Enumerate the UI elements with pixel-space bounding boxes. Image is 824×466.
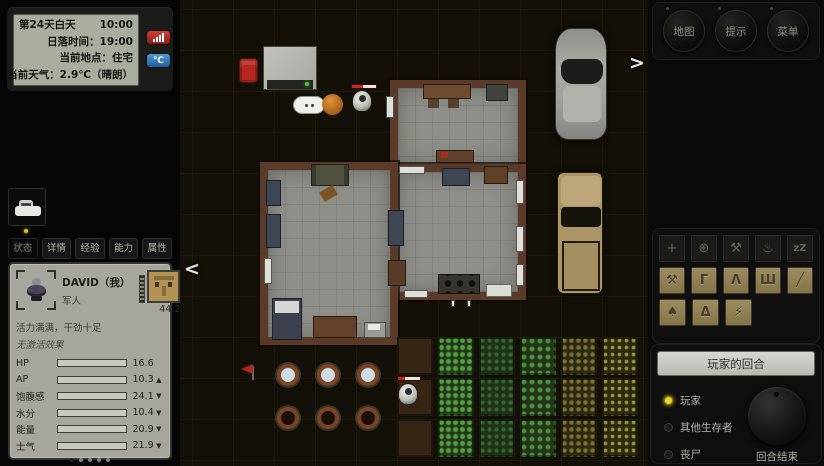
menu-button[interactable]: 菜单 [767, 10, 809, 52]
craft-button[interactable]: ⚒ [723, 235, 749, 262]
empty-pot[interactable] [317, 407, 339, 429]
shelf[interactable] [266, 180, 281, 206]
move-button[interactable]: + [659, 235, 685, 262]
stats-list: HP 16.6 AP 10.3 ▲ 饱腹感 24.1 ▼ 水分 10.4 [16, 355, 164, 454]
hint-button[interactable]: 提示 [715, 10, 757, 52]
game-map[interactable]: > < [180, 0, 648, 466]
stats-pager[interactable] [16, 458, 164, 462]
farm-plot-crop[interactable] [561, 337, 597, 375]
tab-status[interactable]: 状态 [8, 238, 38, 259]
farm-plot-crop[interactable] [479, 378, 515, 416]
player-dot [664, 396, 673, 405]
farm-plot-crop[interactable] [602, 419, 638, 457]
end-turn-label: 回合结束 [745, 449, 809, 464]
desk[interactable] [423, 84, 471, 99]
system-buttons-panel: 地图 提示 菜单 [652, 2, 820, 60]
tab-attributes[interactable]: 属性 [142, 238, 172, 259]
turn-banner: 玩家的回合 [657, 351, 815, 376]
legend-zombies: 丧尸 [664, 447, 733, 462]
door-marker [451, 300, 455, 307]
player-indicator-dot [24, 229, 28, 233]
crowbar-button[interactable]: Γ [691, 267, 717, 294]
current-location: 当前地点：住宅 [60, 50, 134, 67]
tab-experience[interactable]: 经验 [75, 238, 105, 259]
water-pot[interactable] [277, 364, 299, 386]
current-weather: 当前天气：2.9℃（晴朗） [7, 67, 133, 84]
farm-plot-crop[interactable] [520, 378, 556, 416]
door-marker [467, 300, 471, 307]
flashlight-icon: ⚡ [734, 305, 743, 320]
crowbar-icon: Γ [700, 273, 708, 288]
water-pot[interactable] [317, 364, 339, 386]
water-pot[interactable] [357, 364, 379, 386]
window [516, 226, 524, 252]
window [516, 264, 524, 286]
rake-button[interactable]: Ш [755, 267, 781, 294]
pickup-truck[interactable] [557, 172, 603, 294]
sleep-button[interactable]: zZ [787, 235, 813, 262]
rake-icon: Ш [760, 273, 776, 288]
stat-row-energy: 能量 20.9 ▼ [16, 421, 164, 438]
television[interactable] [263, 46, 317, 90]
knife-icon: ╱ [796, 273, 804, 288]
book [368, 324, 380, 330]
health-bar [351, 84, 377, 89]
farm-plot-crop[interactable] [602, 378, 638, 416]
equip-durability-meter [139, 275, 145, 303]
character-name: DAVID（我） [62, 275, 130, 290]
window [264, 258, 272, 284]
clock-time: 10:00 [100, 17, 133, 34]
active-effects-text: 无激活效果 [16, 337, 164, 351]
hammer-icon: ⚒ [666, 273, 678, 288]
window [386, 96, 394, 118]
window [399, 166, 425, 174]
hammer-button[interactable]: ⚒ [659, 267, 685, 294]
scroll-right-chevron[interactable]: > [629, 54, 645, 73]
right-sidebar: 地图 提示 菜单 + ⊕ ⚒ ♨ zZ ⚒ Γ Λ Ш ╱ ♠ Δ ⚡ 玩家的回… [648, 0, 824, 466]
move-icon: + [667, 241, 678, 256]
campfire-tripod-icon: Λ [731, 273, 741, 288]
window [516, 180, 524, 204]
cabinet-wood[interactable] [388, 260, 406, 286]
farm-plot-crop[interactable] [602, 337, 638, 375]
farm-plot-crop[interactable] [561, 378, 597, 416]
end-turn-knob[interactable] [748, 387, 806, 445]
tab-ability[interactable]: 能力 [109, 238, 139, 259]
stat-row-hp: HP 16.6 [16, 355, 164, 372]
car-silver[interactable] [555, 28, 607, 140]
car-icon [15, 200, 41, 216]
equipped-mask-icon[interactable] [147, 270, 180, 303]
shovel-icon: ♠ [667, 305, 679, 320]
couch[interactable] [311, 164, 349, 186]
pillow [275, 301, 299, 313]
farm-plot-crop[interactable] [479, 419, 515, 457]
legend-player: 玩家 [664, 393, 733, 408]
remote-item[interactable] [293, 96, 325, 114]
campfire-button[interactable]: Λ [723, 267, 749, 294]
map-button[interactable]: 地图 [663, 10, 705, 52]
left-sidebar: 第24天白天 10:00 日落时间：19:00 当前地点：住宅 当前天气：2.9… [0, 0, 180, 466]
flashlight-button[interactable]: ⚡ [725, 299, 752, 326]
sunset-time: 日落时间：19:00 [47, 34, 133, 51]
knife-button[interactable]: ╱ [787, 267, 813, 294]
aim-icon: ⊕ [699, 241, 710, 256]
cook-button[interactable]: ♨ [755, 235, 781, 262]
farm-plot-crop[interactable] [520, 419, 556, 457]
shovel-button[interactable]: ♠ [659, 299, 686, 326]
vehicle-button[interactable] [8, 188, 46, 226]
tab-details[interactable]: 详情 [42, 238, 72, 259]
cabinet-blue[interactable] [442, 168, 470, 186]
farm-plot-soil[interactable] [397, 337, 433, 375]
farm-plot-crop[interactable] [438, 337, 474, 375]
orange-critter[interactable] [322, 94, 343, 115]
character-tabs: 状态 详情 经验 能力 属性 [8, 238, 172, 259]
empty-pot[interactable] [277, 407, 299, 429]
stat-row-ap: AP 10.3 ▲ [16, 372, 164, 389]
chair[interactable] [448, 99, 459, 108]
farm-plot-crop[interactable] [561, 419, 597, 457]
signal-button[interactable] [146, 30, 171, 45]
legend-other-survivors: 其他生存者 [664, 420, 733, 435]
farm-plot-crop[interactable] [479, 337, 515, 375]
turn-panel: 玩家的回合 玩家 其他生存者 丧尸 回合结束 [650, 344, 822, 464]
stove[interactable] [438, 274, 480, 294]
character-profession: 军人 [62, 293, 130, 307]
temperature-unit-button[interactable]: ℃ [146, 53, 171, 68]
crate[interactable] [486, 84, 508, 101]
tent-icon: Δ [700, 305, 710, 320]
environment-lcd: 第24天白天 10:00 日落时间：19:00 当前地点：住宅 当前天气：2.9… [13, 14, 139, 86]
day-counter: 第24天白天 [19, 17, 76, 34]
anvil-icon: ⚒ [730, 241, 742, 256]
farm-plot-crop[interactable] [520, 337, 556, 375]
table[interactable] [313, 316, 357, 338]
action-buttons-panel: + ⊕ ⚒ ♨ zZ ⚒ Γ Λ Ш ╱ ♠ Δ ⚡ [652, 228, 820, 344]
equip-durability-value: 44.2 [136, 304, 180, 315]
farm-plot-crop[interactable] [438, 419, 474, 457]
turn-order-legend: 玩家 其他生存者 丧尸 [664, 393, 733, 466]
survivor-unit-farming[interactable] [398, 383, 418, 405]
window [404, 290, 428, 298]
shelf[interactable] [266, 214, 281, 248]
character-portrait[interactable] [16, 270, 56, 310]
crate-wood[interactable] [484, 166, 508, 184]
sink[interactable] [486, 284, 512, 297]
survivor-unit[interactable] [352, 90, 372, 112]
empty-pot[interactable] [357, 407, 379, 429]
environment-info-panel: 第24天白天 10:00 日落时间：19:00 当前地点：住宅 当前天气：2.9… [6, 6, 174, 92]
stat-row-satiety: 饱腹感 24.1 ▼ [16, 388, 164, 405]
sleep-icon: zZ [793, 243, 806, 254]
zombies-dot [664, 450, 673, 459]
character-panel: DAVID（我） 军人 44.2 活力满满，干劲十足 无激活效果 HP 16.6 [8, 262, 172, 460]
scroll-left-chevron[interactable]: < [184, 260, 200, 279]
cabinet-tall[interactable] [388, 210, 404, 246]
tent-button[interactable]: Δ [692, 299, 719, 326]
signal-bars-icon [153, 33, 164, 42]
gas-can[interactable] [239, 58, 258, 83]
power-led [305, 82, 309, 86]
red-item[interactable] [441, 152, 448, 158]
health-bar [397, 376, 421, 381]
survivors-dot [664, 423, 673, 432]
cooking-icon: ♨ [762, 241, 774, 256]
aim-button[interactable]: ⊕ [691, 235, 717, 262]
farm-plot-soil[interactable] [397, 419, 433, 457]
stat-row-hydration: 水分 10.4 ▼ [16, 405, 164, 422]
farm-plot-crop[interactable] [438, 378, 474, 416]
stat-row-morale: 士气 21.9 ▼ [16, 438, 164, 455]
mood-text: 活力满满，干劲十足 [16, 320, 164, 334]
chair[interactable] [428, 99, 439, 108]
